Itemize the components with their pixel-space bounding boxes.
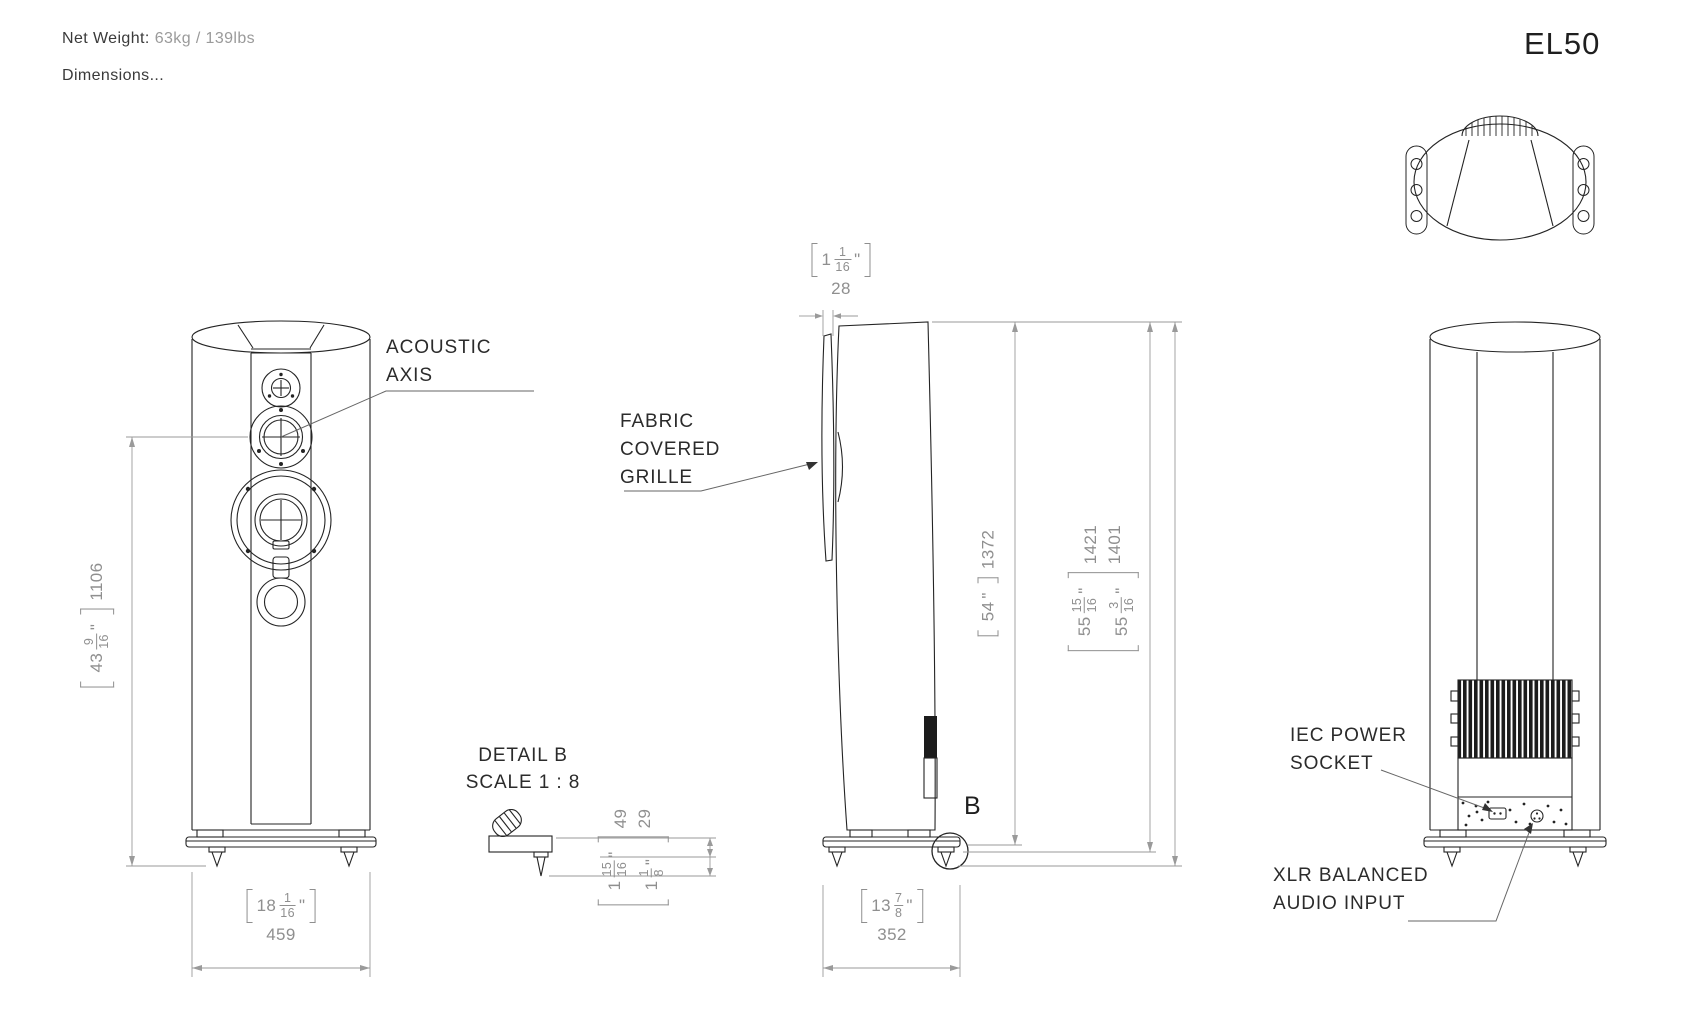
net-weight-label: Net Weight:: [62, 30, 150, 47]
xlr-line2: AUDIO INPUT: [1273, 890, 1428, 918]
acoustic-axis-line2: AXIS: [386, 362, 491, 390]
dim-grille-thickness: 1116" 28: [811, 243, 870, 299]
detail-b-drawing: [489, 806, 552, 876]
xlr-arrow: [1524, 823, 1533, 834]
top-view: [1406, 116, 1594, 240]
heatsink-side: [924, 716, 937, 758]
top-cap: [1462, 116, 1538, 136]
iec-line1: IEC POWER: [1290, 722, 1407, 750]
fabric-grille-line2: COVERED: [620, 436, 720, 464]
grille-curve: [838, 432, 843, 502]
tweeter-driver: [262, 369, 300, 407]
fabric-grille-line1: FABRIC: [620, 408, 720, 436]
fabric-grille-arrow: [806, 462, 818, 470]
top-outriggers: [1406, 146, 1594, 234]
dim-depth: 1378" 352: [861, 889, 923, 945]
panel-screws: [1462, 801, 1568, 827]
dim-cabinet-height: 54" 1372: [978, 530, 999, 637]
amp-connector-panel: [1458, 758, 1572, 830]
heatsink: [1451, 680, 1579, 758]
detail-circle-b: [932, 833, 968, 869]
dim-front-width: 18116" 459: [247, 889, 316, 945]
xlr-connector-icon: [1531, 810, 1543, 822]
acoustic-axis-leader: [281, 391, 534, 437]
drawing-linework: [0, 0, 1700, 1020]
iec-socket-icon: [1489, 808, 1506, 819]
front-horn: [238, 325, 324, 353]
dim-overall-heights: 551516" 55316" 1421 1401: [1068, 525, 1139, 651]
detail-marker-b: B: [964, 792, 982, 821]
xlr-label: XLR BALANCED AUDIO INPUT: [1273, 862, 1428, 918]
net-weight-value: 63kg / 139lbs: [155, 30, 255, 47]
side-view: [822, 322, 968, 869]
fabric-grille-line3: GRILLE: [620, 464, 720, 492]
dimensions-label: Dimensions...: [62, 67, 164, 85]
acoustic-axis-label: ACOUSTIC AXIS: [386, 334, 491, 390]
side-plinth: [823, 830, 960, 866]
dim-axis-height: 43916" 1106: [80, 562, 114, 687]
front-plinth: [186, 830, 376, 866]
detail-scale: SCALE 1 : 8: [466, 769, 580, 797]
detail-title: DETAIL B: [478, 742, 568, 770]
fabric-grille-label: FABRIC COVERED GRILLE: [620, 408, 720, 492]
rear-plinth: [1424, 830, 1606, 866]
rear-view: [1424, 322, 1606, 866]
iec-line2: SOCKET: [1290, 750, 1407, 778]
iec-label: IEC POWER SOCKET: [1290, 722, 1407, 778]
drawing-canvas: Net Weight:63kg / 139lbs Dimensions... E…: [0, 0, 1700, 1020]
front-view: [186, 321, 376, 866]
dim-foot-heights: 11516" 118" 49 29: [598, 809, 669, 906]
model-title: EL50: [1524, 26, 1600, 62]
acoustic-axis-line1: ACOUSTIC: [386, 334, 491, 362]
grille-panel: [822, 334, 834, 561]
net-weight: Net Weight:63kg / 139lbs: [62, 30, 255, 48]
xlr-line1: XLR BALANCED: [1273, 862, 1428, 890]
woofer-driver: [231, 470, 331, 570]
